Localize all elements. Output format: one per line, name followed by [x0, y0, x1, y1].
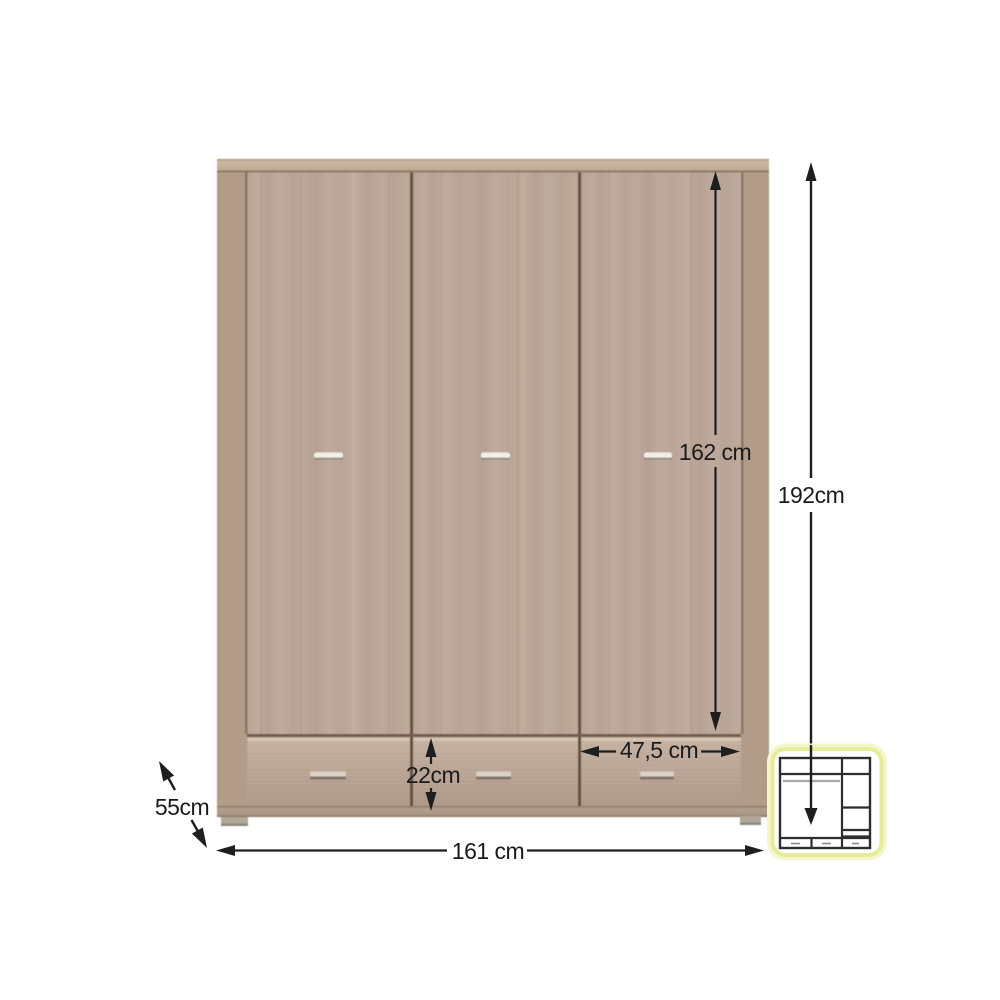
svg-text:47,5 cm: 47,5 cm	[620, 737, 698, 763]
svg-text:22cm: 22cm	[406, 762, 460, 788]
svg-text:162 cm: 162 cm	[679, 439, 751, 465]
svg-text:55cm: 55cm	[155, 794, 209, 820]
svg-text:161 cm: 161 cm	[452, 838, 524, 864]
svg-text:192cm: 192cm	[778, 482, 845, 508]
